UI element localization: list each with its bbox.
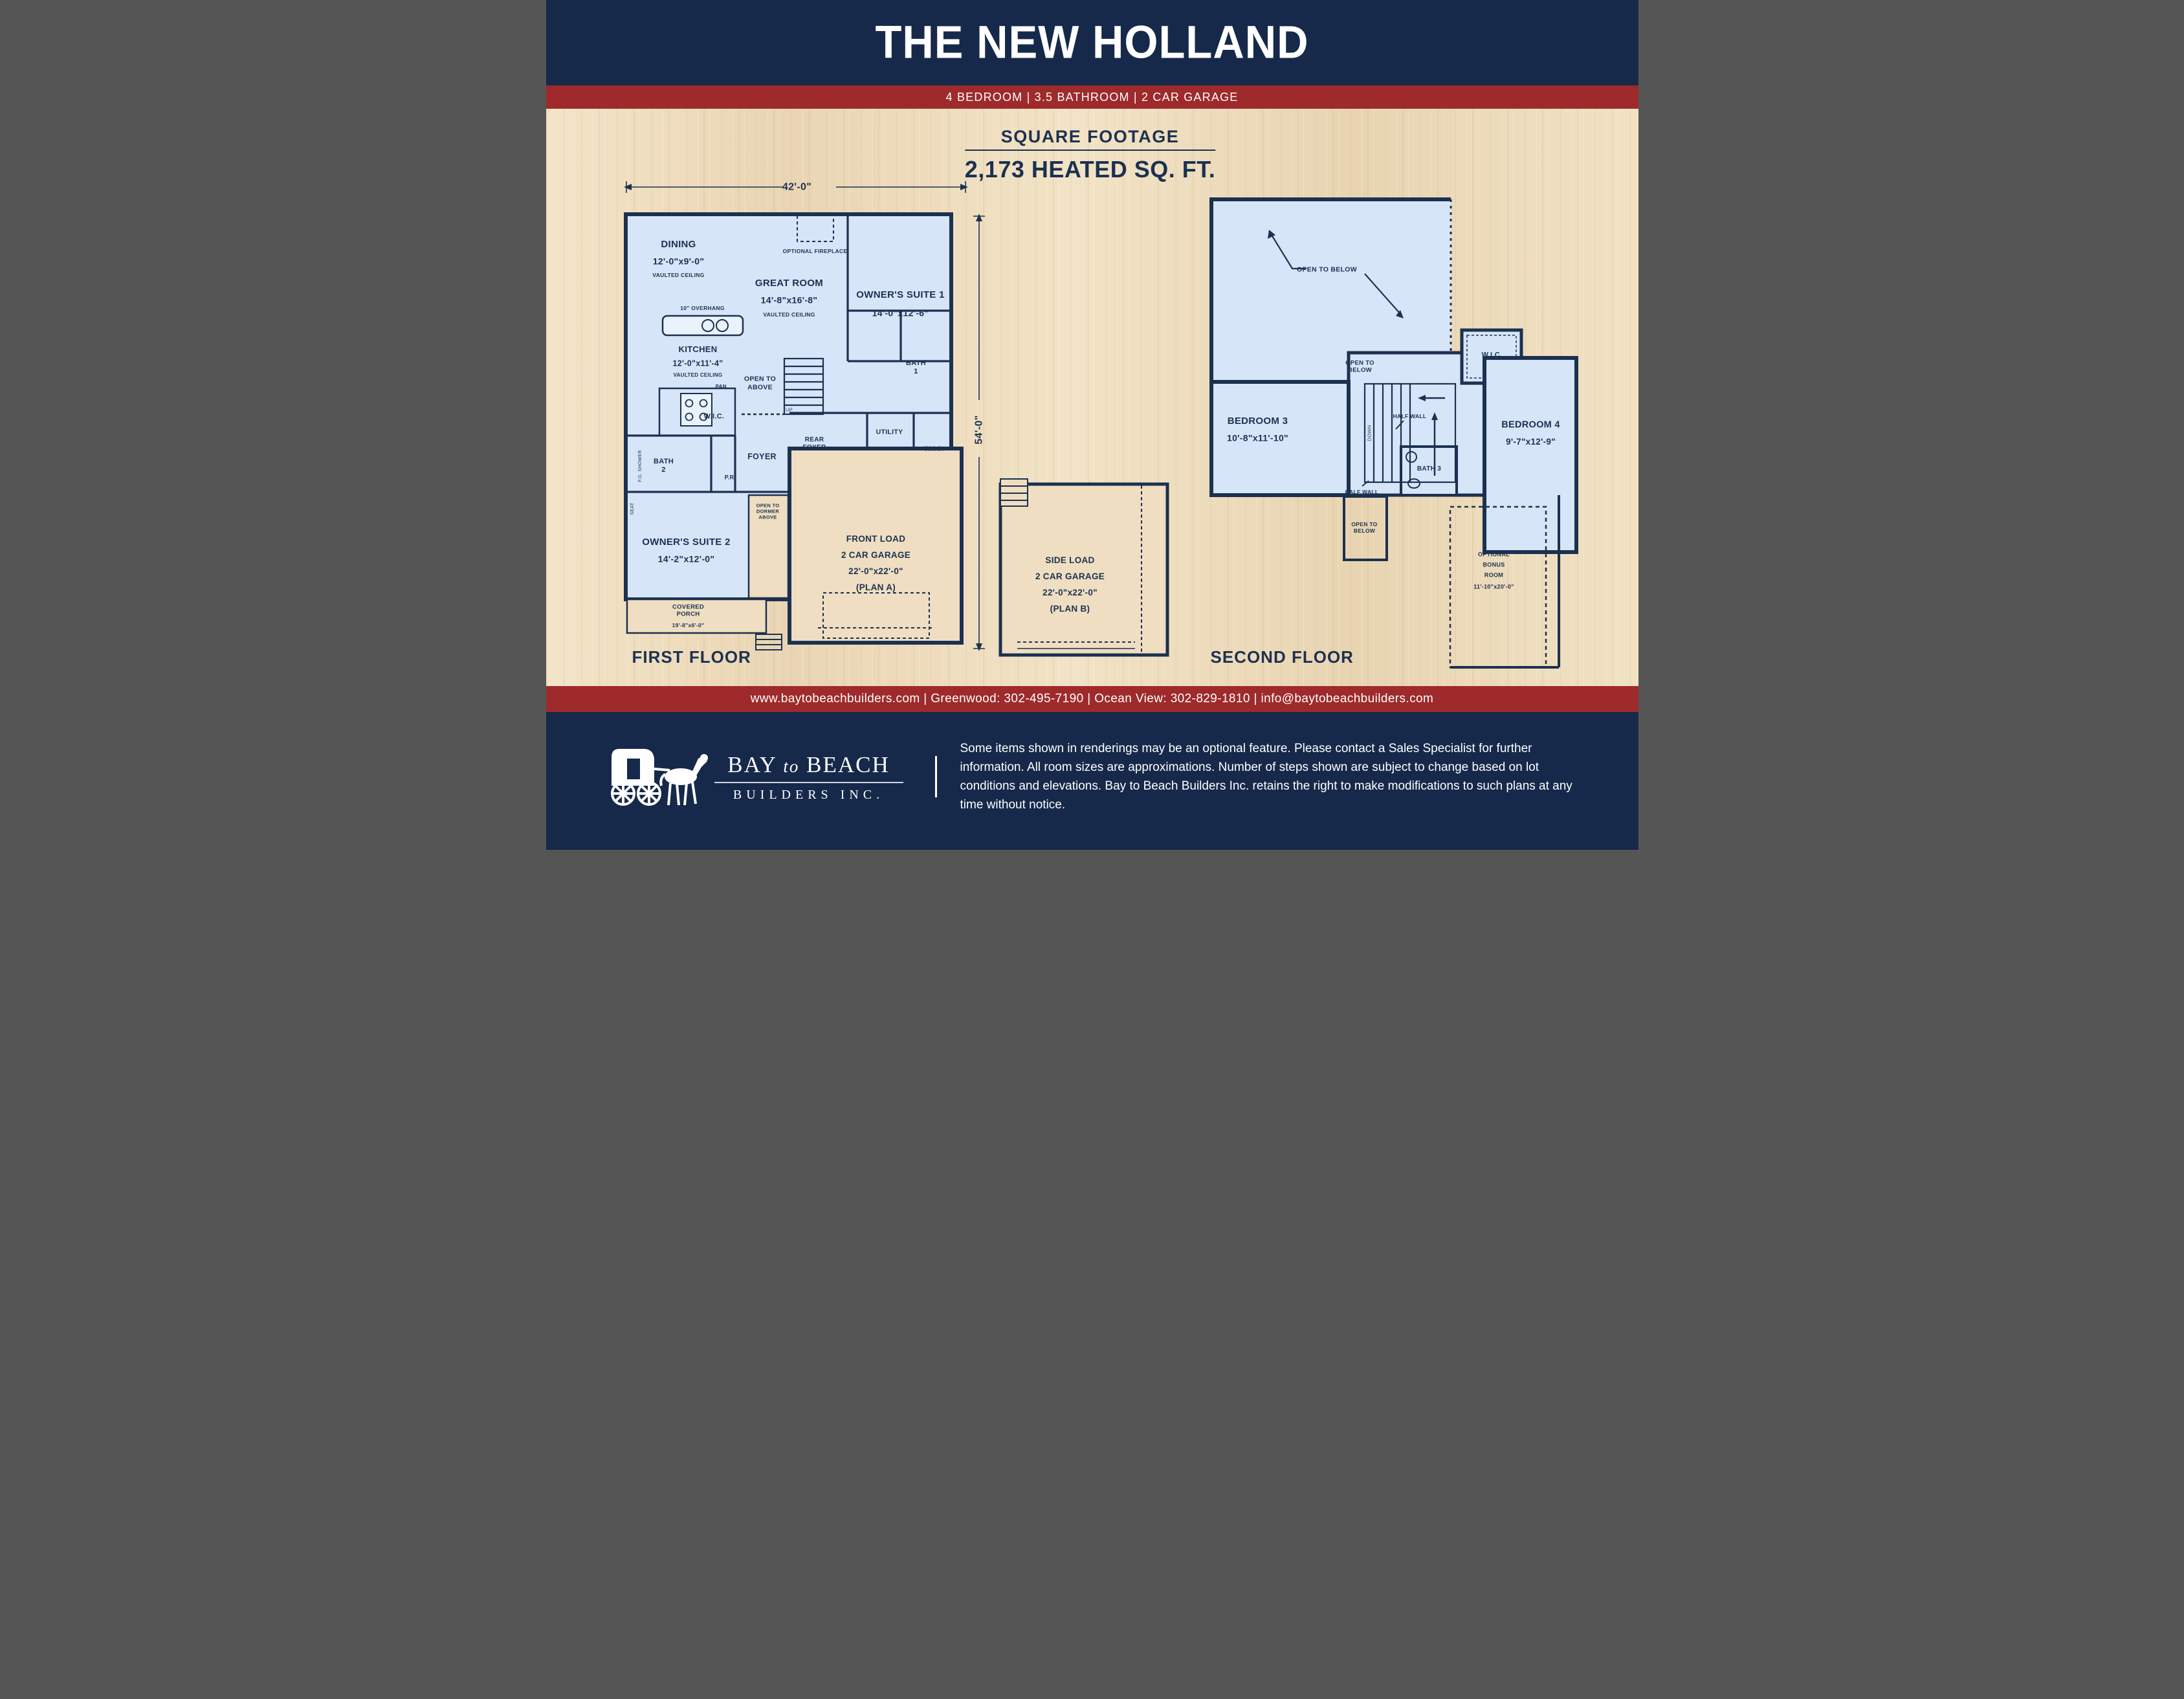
- square-footage-value: 2,173 HEATED SQ. FT.: [965, 156, 1215, 183]
- room-label-bath-1: BATH 1: [903, 359, 929, 376]
- room-label-great-room: GREAT ROOM: [755, 278, 823, 289]
- garage-a-line1: FRONT LOAD: [846, 534, 906, 544]
- page-title: THE NEW HOLLAND: [546, 0, 1638, 88]
- square-footage-heading: SQUARE FOOTAGE: [965, 127, 1215, 151]
- room-note-dining: VAULTED CEILING: [652, 272, 704, 278]
- bonus-room-line3: ROOM: [1484, 572, 1503, 579]
- width-dimension-label: 42'-0": [782, 181, 811, 193]
- label-fg-shower: F.G. SHOWER: [637, 450, 643, 482]
- garage-a-dims: 22'-0"x22'-0": [848, 566, 903, 577]
- garage-b-line2: 2 CAR GARAGE: [1035, 572, 1105, 582]
- room-dims-kitchen: 12'-0"x11'-4": [673, 359, 723, 369]
- room-label-owners-suite-1: OWNER'S SUITE 1: [856, 289, 944, 301]
- room-label-covered-porch: COVERED PORCH: [666, 604, 711, 619]
- room-label-owners-suite-2: OWNER'S SUITE 2: [642, 537, 730, 548]
- garage-b-line1: SIDE LOAD: [1045, 555, 1094, 566]
- room-label-bath-3: BATH 3: [1417, 465, 1442, 473]
- label-seat: SEAT: [630, 503, 635, 515]
- label-stairs-up: UP: [786, 407, 793, 413]
- garage-a-plan: (PLAN A): [856, 583, 896, 593]
- room-label-bedroom-4: BEDROOM 4: [1501, 419, 1560, 430]
- disclaimer-text: Some items shown in renderings may be an…: [960, 740, 1583, 815]
- logo-text-block: BAY to BEACH BUILDERS INC.: [713, 752, 905, 803]
- room-dims-dining: 12'-0"x9'-0": [653, 256, 705, 267]
- room-label-wic-3: W.I.C.: [1482, 351, 1503, 359]
- room-label-bedroom-3: BEDROOM 3: [1228, 416, 1288, 427]
- garage-b-plan: (PLAN B): [1050, 604, 1090, 614]
- room-dims-great-room: 14'-8"x16'-8": [761, 295, 818, 306]
- logo-beach: BEACH: [806, 752, 890, 777]
- logo-bay: BAY: [727, 752, 776, 777]
- room-dims-owners-suite-1: 14'-0"x12'-6": [872, 308, 929, 319]
- logo-line-1: BAY to BEACH: [713, 752, 905, 778]
- contact-bar: www.baytobeachbuilders.com | Greenwood: …: [546, 686, 1638, 712]
- plan-b-garage: SIDE LOAD 2 CAR GARAGE 22'-0"x22'-0" (PL…: [998, 478, 1171, 659]
- garage-a-line2: 2 CAR GARAGE: [841, 550, 910, 561]
- label-open-to-below-mid: OPEN TO BELOW: [1341, 360, 1379, 375]
- room-label-dining: DINING: [661, 239, 696, 250]
- logo-line-2: BUILDERS INC.: [713, 788, 905, 803]
- label-open-to-dormer: OPEN TO DORMER ABOVE: [751, 503, 785, 520]
- room-label-kitchen: KITCHEN: [679, 344, 718, 355]
- spec-banner: 4 BEDROOM | 3.5 BATHROOM | 2 CAR GARAGE: [546, 85, 1638, 109]
- label-optional-fireplace: OPTIONAL FIREPLACE: [783, 248, 848, 254]
- label-open-to-below-low: OPEN TO BELOW: [1349, 521, 1381, 534]
- bonus-room-dims: 11'-10"x20'-0": [1473, 584, 1514, 591]
- room-label-foyer: FOYER: [747, 452, 777, 462]
- room-label-wic-1: W.I.C.: [704, 412, 725, 421]
- room-label-wic-2: W.I.C.: [924, 445, 943, 454]
- label-overhang: 10" OVERHANG: [680, 305, 725, 311]
- depth-dimension-label: 54'-0": [973, 415, 985, 444]
- label-stairs-down: DOWN: [1366, 425, 1372, 441]
- bonus-room-line2: BONUS: [1483, 562, 1505, 569]
- plan-b-garage-drawing: [998, 478, 1171, 659]
- header-band: THE NEW HOLLAND: [546, 0, 1638, 85]
- first-floor-plan: DINING 12'-0"x9'-0" VAULTED CEILING OPTI…: [624, 212, 967, 652]
- horse-and-buggy-icon: [608, 743, 711, 810]
- flyer-page: THE NEW HOLLAND 4 BEDROOM | 3.5 BATHROOM…: [546, 0, 1638, 850]
- room-dims-bedroom-3: 10'-8"x11'-10": [1227, 433, 1288, 444]
- room-dims-owners-suite-2: 14'-2"x12'-0": [658, 554, 715, 565]
- room-label-rear-foyer: REAR FOYER: [797, 436, 833, 452]
- logo-rule: [714, 782, 903, 783]
- room-note-great-room: VAULTED CEILING: [763, 311, 815, 318]
- square-footage-block: SQUARE FOOTAGE 2,173 HEATED SQ. FT.: [965, 127, 1215, 183]
- second-floor-plan: OPEN TO BELOW OPEN TO BELOW W.I.C. DOWN …: [1209, 197, 1578, 670]
- room-label-pr: P.R.: [725, 474, 736, 482]
- label-open-to-above: OPEN TO ABOVE: [737, 375, 784, 391]
- room-dims-bedroom-4: 9'-7"x12'-9": [1506, 437, 1556, 447]
- footer-divider: [935, 756, 937, 797]
- room-label-bath-2: BATH 2: [651, 458, 677, 474]
- bonus-room-line1: OPTIONAL: [1478, 551, 1510, 559]
- first-floor-title: FIRST FLOOR: [632, 647, 751, 667]
- label-open-to-below-top: OPEN TO BELOW: [1297, 266, 1357, 274]
- room-label-utility: UTILITY: [876, 428, 903, 437]
- label-pantry: PAN.: [716, 384, 729, 390]
- room-note-kitchen: VAULTED CEILING: [674, 372, 723, 379]
- label-half-wall-1: HALF WALL: [1393, 413, 1427, 419]
- label-half-wall-2: HALF WALL: [1345, 489, 1379, 495]
- room-dims-covered-porch: 19'-8"x6'-0": [672, 622, 705, 628]
- second-floor-title: SECOND FLOOR: [1211, 647, 1354, 667]
- garage-b-dims: 22'-0"x22'-0": [1042, 588, 1098, 598]
- logo-to: to: [783, 757, 799, 776]
